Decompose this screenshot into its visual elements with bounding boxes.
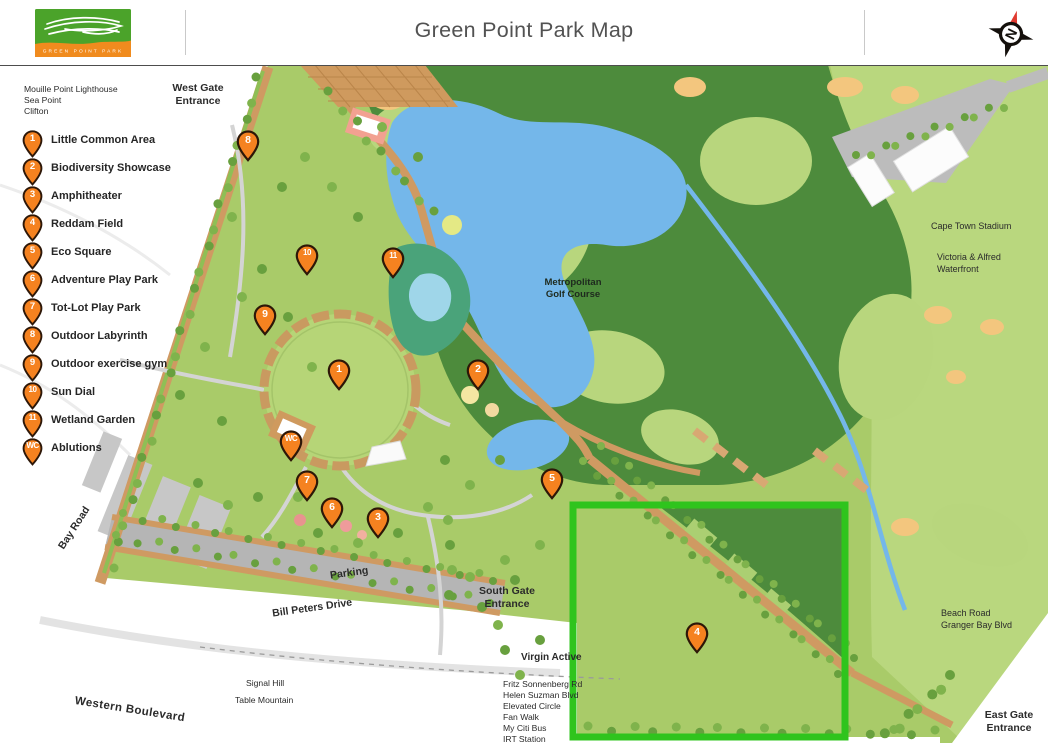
legend-item-label: Reddam Field xyxy=(51,218,123,230)
label-table-mountain: Table Mountain xyxy=(235,695,293,706)
label-south-gate: South Gate Entrance xyxy=(462,585,552,612)
label-west-gate: West Gate Entrance xyxy=(152,82,244,109)
label-signal-hill: Signal Hill xyxy=(246,678,284,689)
legend-item-8: 8Outdoor Labyrinth xyxy=(22,325,222,353)
map-pin-number: 3 xyxy=(366,511,390,523)
page-title: Green Point Park Map xyxy=(0,18,1048,43)
map-pin-4[interactable]: 4 xyxy=(685,622,709,654)
label-cape-town-stadium: Cape Town Stadium xyxy=(931,221,1011,233)
map-pin-1[interactable]: 1 xyxy=(327,359,351,391)
legend-pin-number: 4 xyxy=(22,217,43,228)
map-pin-number: 6 xyxy=(320,501,344,513)
map-pin-number: 7 xyxy=(295,474,319,486)
map-pin-5[interactable]: 5 xyxy=(540,468,564,500)
legend-item-1: 1Little Common Area xyxy=(22,129,222,157)
legend-pin-number: 11 xyxy=(22,413,43,422)
legend-item-7: 7Tot-Lot Play Park xyxy=(22,297,222,325)
map-pin-9[interactable]: 9 xyxy=(253,304,277,336)
legend-item-3: 3Amphitheater xyxy=(22,185,222,213)
legend-pin-number: 6 xyxy=(22,273,43,284)
legend-pin-number: 1 xyxy=(22,133,43,144)
legend-item-6: 6Adventure Play Park xyxy=(22,269,222,297)
map-pin-11[interactable]: 11 xyxy=(381,247,405,279)
legend-pin-number: 3 xyxy=(22,189,43,200)
map-pin-number: 1 xyxy=(327,363,351,375)
map-pin-number: 4 xyxy=(685,626,709,638)
legend-item-WC: WCAblutions xyxy=(22,437,222,465)
map-pin-WC[interactable]: WC xyxy=(279,430,303,462)
legend-pin-number: WC xyxy=(22,441,43,450)
legend-item-label: Outdoor exercise gym xyxy=(51,358,167,370)
map-pin-number: 5 xyxy=(540,472,564,484)
map-pin-number: 10 xyxy=(295,248,319,257)
map-pin-number: 8 xyxy=(236,134,260,146)
legend-pin-number: 5 xyxy=(22,245,43,256)
label-va-waterfront: Victoria & Alfred Waterfront xyxy=(937,252,1001,275)
map-pin-10[interactable]: 10 xyxy=(295,244,319,276)
legend-item-label: Biodiversity Showcase xyxy=(51,162,171,174)
label-virgin-active: Virgin Active xyxy=(521,652,582,665)
legend-item-9: 9Outdoor exercise gym xyxy=(22,353,222,381)
map-pin-2[interactable]: 2 xyxy=(466,359,490,391)
map-pin-number: 2 xyxy=(466,363,490,375)
legend-item-label: Ablutions xyxy=(51,442,102,454)
map-pin-number: 9 xyxy=(253,308,277,320)
legend-pin-number: 2 xyxy=(22,161,43,172)
compass-north-icon: N xyxy=(984,6,1038,60)
legend-item-10: 10Sun Dial xyxy=(22,381,222,409)
map-pin-3[interactable]: 3 xyxy=(366,507,390,539)
map-pin-8[interactable]: 8 xyxy=(236,130,260,162)
label-golf-course: Metropolitan Golf Course xyxy=(523,277,623,301)
legend-item-label: Sun Dial xyxy=(51,386,95,398)
label-transport-list: Fritz Sonnenberg Rd Helen Suzman Blvd El… xyxy=(503,679,582,745)
map-pin-number: WC xyxy=(279,434,303,443)
legend-item-2: 2Biodiversity Showcase xyxy=(22,157,222,185)
legend-item-5: 5Eco Square xyxy=(22,241,222,269)
map-pin-6[interactable]: 6 xyxy=(320,497,344,529)
legend-pin-number: 8 xyxy=(22,329,43,340)
legend-item-4: 4Reddam Field xyxy=(22,213,222,241)
legend-pin-number: 7 xyxy=(22,301,43,312)
legend-item-label: Tot-Lot Play Park xyxy=(51,302,141,314)
map-pin-7[interactable]: 7 xyxy=(295,470,319,502)
legend-item-label: Amphitheater xyxy=(51,190,122,202)
legend-item-label: Eco Square xyxy=(51,246,112,258)
logo-text: GREEN POINT PARK xyxy=(43,49,124,55)
legend-item-label: Little Common Area xyxy=(51,134,155,146)
legend-item-11: 11Wetland Garden xyxy=(22,409,222,437)
legend-item-label: Adventure Play Park xyxy=(51,274,158,286)
label-east-gate: East Gate Entrance xyxy=(973,709,1045,736)
legend-item-label: Wetland Garden xyxy=(51,414,135,426)
label-nearby-west: Mouille Point Lighthouse Sea Point Clift… xyxy=(24,84,118,117)
header: GREEN POINT PARK Green Point Park Map N xyxy=(0,0,1048,65)
legend-pin-number: 9 xyxy=(22,357,43,368)
map-pin-number: 11 xyxy=(381,251,405,260)
label-beach-road: Beach Road Granger Bay Blvd xyxy=(941,608,1012,631)
legend-pin-number: 10 xyxy=(22,385,43,394)
legend-item-label: Outdoor Labyrinth xyxy=(51,330,148,342)
